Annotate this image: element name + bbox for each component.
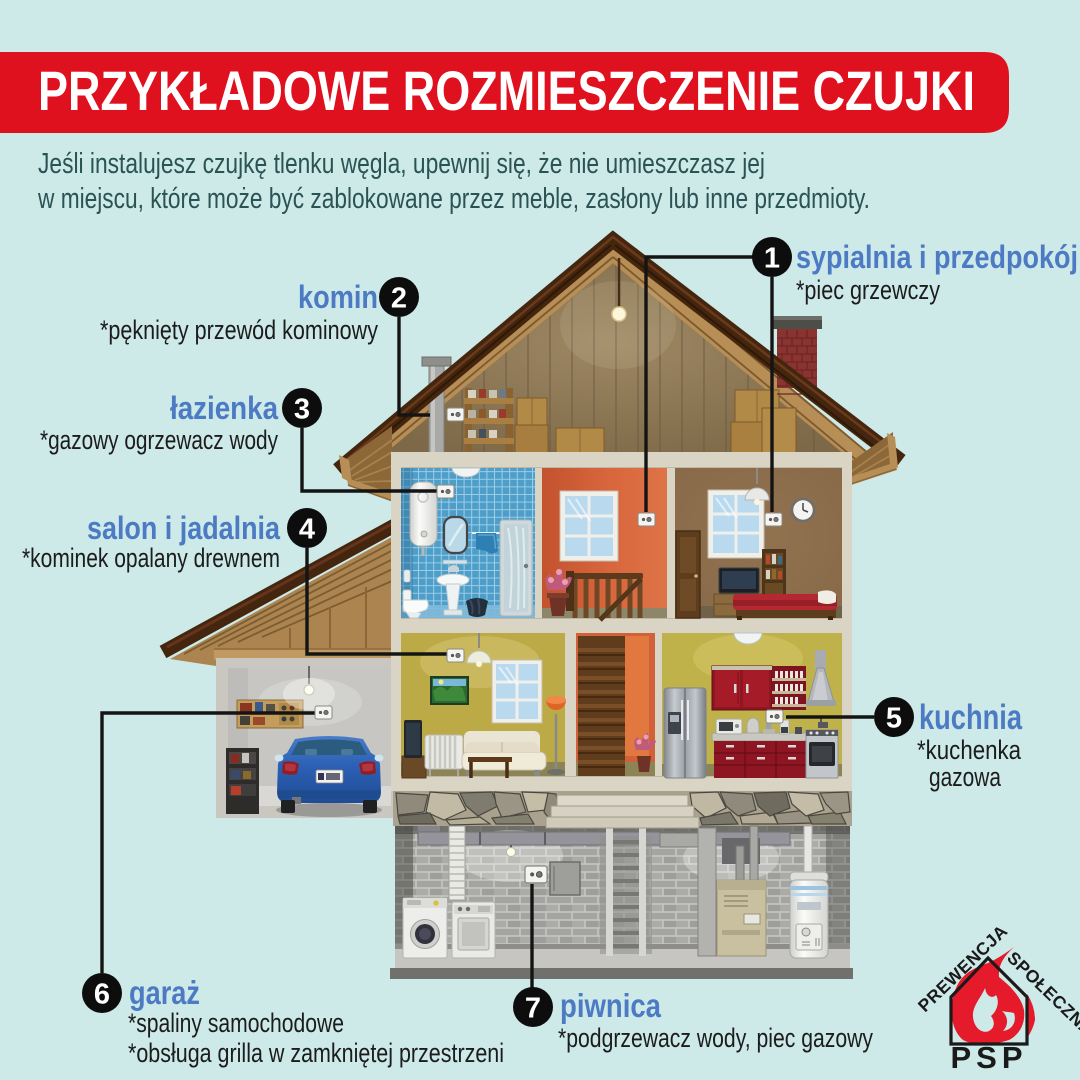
svg-text:7: 7 [525, 993, 541, 1025]
svg-text:PRZYKŁADOWE ROZMIESZCZENIE CZU: PRZYKŁADOWE ROZMIESZCZENIE CZUJKI [38, 59, 975, 122]
svg-text:garaż: garaż [129, 974, 200, 1011]
svg-text:*kuchenka: *kuchenka [917, 735, 1022, 765]
svg-text:*spaliny samochodowe: *spaliny samochodowe [128, 1008, 344, 1038]
svg-text:*podgrzewacz wody, piec gazowy: *podgrzewacz wody, piec gazowy [558, 1023, 873, 1053]
svg-text:w miejscu, które może być zabl: w miejscu, które może być zablokowane pr… [37, 183, 870, 215]
svg-text:piwnica: piwnica [560, 987, 662, 1024]
svg-text:5: 5 [886, 703, 902, 735]
svg-text:6: 6 [94, 979, 110, 1011]
svg-text:*pęknięty przewód kominowy: *pęknięty przewód kominowy [100, 315, 378, 345]
svg-text:gazowa: gazowa [929, 762, 1002, 792]
svg-text:1: 1 [764, 243, 780, 275]
svg-text:4: 4 [299, 514, 315, 546]
svg-text:2: 2 [391, 283, 407, 315]
svg-text:salon i jadalnia: salon i jadalnia [87, 510, 280, 546]
svg-text:komin: komin [298, 279, 378, 315]
svg-text:sypialnia i przedpokój: sypialnia i przedpokój [796, 239, 1078, 275]
svg-text:*obsługa grilla w zamkniętej p: *obsługa grilla w zamkniętej przestrzeni [128, 1038, 504, 1068]
svg-text:*kominek opalany drewnem: *kominek opalany drewnem [22, 543, 280, 573]
svg-text:3: 3 [294, 394, 310, 426]
svg-text:Jeśli instalujesz czujkę tlenk: Jeśli instalujesz czujkę tlenku węgla, u… [38, 148, 765, 180]
svg-text:*piec grzewczy: *piec grzewczy [796, 275, 940, 305]
svg-text:kuchnia: kuchnia [919, 698, 1022, 737]
svg-text:*gazowy ogrzewacz wody: *gazowy ogrzewacz wody [40, 425, 278, 455]
svg-text:PSP: PSP [950, 1040, 1027, 1075]
svg-text:łazienka: łazienka [170, 390, 278, 426]
